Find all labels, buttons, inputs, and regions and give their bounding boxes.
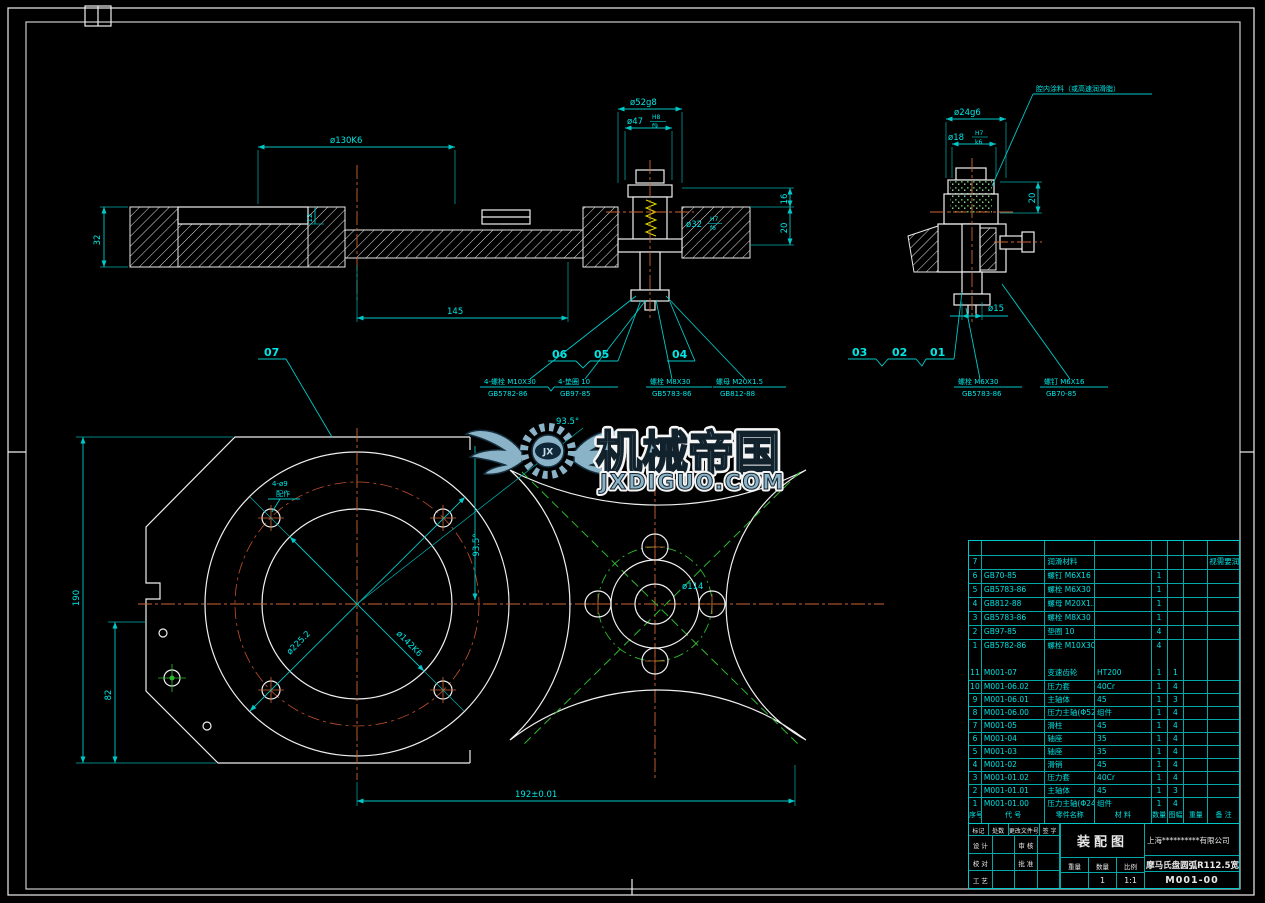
dim-24-label: ø24g6 xyxy=(954,108,981,118)
dim-32-label: 32 xyxy=(93,235,103,246)
label-audit: 审 核 xyxy=(1015,836,1039,853)
dim-47-label: ø47 xyxy=(627,117,643,127)
dim-4x9-note: 配作 xyxy=(276,489,290,498)
bom-cell-no: 7 xyxy=(969,556,982,569)
bom-cell-remark xyxy=(1208,681,1239,693)
weight-value xyxy=(1061,873,1089,888)
bom-cell-weight xyxy=(1184,746,1208,758)
dim-18-label: ø18 xyxy=(948,133,964,143)
bom-cell-material: 45 xyxy=(1095,720,1152,732)
dim-15-label: ø15 xyxy=(988,304,1004,314)
bom-table: 7 润滑材料 视需要润滑 6 GB70-85 螺钉 M6X16 1 5 GB57… xyxy=(968,540,1240,826)
title-block-center: 装配图 重量 数量 比例 1 1:1 xyxy=(1061,824,1145,888)
bom-row: 2 GB97-85 垫圈 10 4 xyxy=(969,625,1239,639)
balloon-03: 03 xyxy=(852,346,867,359)
bom-cell-no: 10 xyxy=(969,681,982,693)
bom-cell-code: M001-01.02 xyxy=(982,772,1046,784)
bom-cell-code: M001-02 xyxy=(982,759,1046,771)
bom-cell-qty: 1 xyxy=(1152,694,1168,706)
balloon-01: 01 xyxy=(930,346,945,359)
callout-screw-m6x16-std: GB70-85 xyxy=(1046,390,1077,398)
bom-cell-no: 4 xyxy=(969,598,982,611)
bom-cell-qty: 1 xyxy=(1152,667,1168,680)
balloon-07: 07 xyxy=(264,346,279,359)
bom-cell-code: GB70-85 xyxy=(982,570,1046,583)
plan-view-dimensions: ø225.2 ø142K6 93.5° 93.5° 4-ø9 配作 190 82… xyxy=(72,346,795,806)
bom-cell-qty: 1 xyxy=(1152,785,1168,797)
bom-cell-code: GB97-85 xyxy=(982,626,1046,639)
bom-cell-qty: 1 xyxy=(1152,681,1168,693)
label-qty: 数量 xyxy=(1089,858,1117,873)
dim-20-right-label: 20 xyxy=(1028,193,1038,204)
bom-cell-name: 润滑材料 xyxy=(1045,556,1095,569)
bom-cell-material xyxy=(1095,584,1152,597)
label-sign: 签 字 xyxy=(1040,824,1060,836)
bom-row: 4 GB812-88 螺母 M20X1.5 1 xyxy=(969,597,1239,611)
bom-cell-no xyxy=(969,541,982,555)
bom-cell-format xyxy=(1168,640,1185,653)
bom-cell-qty: 1 xyxy=(1152,570,1168,583)
bom-cell-weight xyxy=(1184,707,1208,719)
bom-cell-name: 螺栓 M10X30 xyxy=(1045,640,1095,653)
bom-cell-remark xyxy=(1208,640,1239,653)
label-approve: 批 准 xyxy=(1015,854,1039,871)
bom-cell-code: M001-01.00 xyxy=(982,798,1046,810)
bom-cell-remark xyxy=(1208,584,1239,597)
bom-cell-no: 6 xyxy=(969,570,982,583)
bom-cell-no: 5 xyxy=(969,584,982,597)
bom-cell-name: 螺钉 M6X16 xyxy=(1045,570,1095,583)
bom-cell-format: 1 xyxy=(1168,667,1185,680)
bom-cell-material: HT200 xyxy=(1095,667,1152,680)
bom-cell-no: 1 xyxy=(969,798,982,810)
balloon-06: 06 xyxy=(552,348,568,361)
dim-12-label: 12 xyxy=(306,214,314,223)
bom-cell-code: M001-06.01 xyxy=(982,694,1046,706)
bom-row: 11 M001-07 变速齿轮 HT200 1 1 xyxy=(969,667,1239,680)
bom-cell-remark xyxy=(1208,707,1239,719)
bom-row xyxy=(969,541,1239,555)
bom-cell-remark xyxy=(1208,667,1239,680)
bom-row: 10 M001-06.02 压力套 40Cr 1 4 xyxy=(969,680,1239,693)
bom-cell-weight xyxy=(1184,733,1208,745)
bom-cell-qty: 1 xyxy=(1152,733,1168,745)
bom-cell-weight xyxy=(1184,541,1208,555)
bom-row: 1 M001-01.00 压力主轴(Φ24) 组件 1 4 xyxy=(969,797,1239,810)
bom-cell-qty: 1 xyxy=(1152,759,1168,771)
bom-cell-weight xyxy=(1184,694,1208,706)
bom-cell-format xyxy=(1168,584,1185,597)
bom-cell-name: 变速齿轮 xyxy=(1045,667,1095,680)
bom-cell-remark xyxy=(1208,626,1239,639)
scale-value: 1:1 xyxy=(1117,873,1144,888)
bom-cell-no: 8 xyxy=(969,707,982,719)
bom-cell-qty: 1 xyxy=(1152,720,1168,732)
bom-cell-remark xyxy=(1208,798,1239,810)
plan-view-geneva-wheel: ø114 xyxy=(510,470,806,746)
bom-cell-remark xyxy=(1208,759,1239,771)
dim-47-fit-den: f9 xyxy=(652,123,658,130)
bom-cell-material: 40Cr xyxy=(1095,772,1152,784)
dim-18-fit-den: k6 xyxy=(975,139,982,146)
bom-cell-qty xyxy=(1152,556,1168,569)
bom-cell-weight xyxy=(1184,772,1208,784)
bom-cell-name: 压力套 xyxy=(1045,772,1095,784)
bom-cell-weight xyxy=(1184,720,1208,732)
bom-cell-no: 9 xyxy=(969,694,982,706)
bom-cell-format: 4 xyxy=(1168,733,1185,745)
logo-monogram: JX xyxy=(542,448,553,458)
product-title: 摩马氏盘圆弧R112.5宽 xyxy=(1145,856,1239,872)
label-count: 处数 xyxy=(989,824,1009,836)
dim-935-top-label: 93.5° xyxy=(556,417,579,427)
dim-130-label: ø130K6 xyxy=(330,136,362,146)
bom-cell-format: 4 xyxy=(1168,798,1185,810)
bom-row: 8 M001-06.00 压力主轴(Φ52) 组件 1 4 xyxy=(969,706,1239,719)
bom-row: 6 M001-04 轴座 35 1 4 xyxy=(969,732,1239,745)
bom-cell-code: M001-03 xyxy=(982,746,1046,758)
drawing-number: M001-00 xyxy=(1145,872,1239,888)
bom-cell-code: M001-01.01 xyxy=(982,785,1046,797)
bom-cell-format: 3 xyxy=(1168,694,1185,706)
bom-cell-remark xyxy=(1208,785,1239,797)
bom-cell-code: M001-07 xyxy=(982,667,1046,680)
bom-cell-format xyxy=(1168,598,1185,611)
bom-row: 7 M001-05 滑柱 45 1 4 xyxy=(969,719,1239,732)
bom-cell-qty xyxy=(1152,541,1168,555)
bom-cell-material xyxy=(1095,612,1152,625)
bom-cell-material xyxy=(1095,541,1152,555)
company-name: 上海**********有限公司 xyxy=(1145,824,1239,856)
dim-47-fit-num: H8 xyxy=(652,114,661,121)
bom-cell-name: 轴座 xyxy=(1045,746,1095,758)
label-change-doc: 更改文件号 xyxy=(1009,824,1041,836)
bom-cell-remark xyxy=(1208,541,1239,555)
qty-value: 1 xyxy=(1089,873,1117,888)
bom-cell-name xyxy=(1045,541,1095,555)
bom-cell-no: 3 xyxy=(969,772,982,784)
bom-row: 3 GB5783-86 螺栓 M8X30 1 xyxy=(969,611,1239,625)
bom-cell-qty: 1 xyxy=(1152,612,1168,625)
callout-nut-m20: 螺母 M20X1.5 xyxy=(716,377,763,386)
bom-row: 3 M001-01.02 压力套 40Cr 1 4 xyxy=(969,771,1239,784)
bom-cell-name: 压力套 xyxy=(1045,681,1095,693)
bom-cell-code xyxy=(982,556,1046,569)
bom-cell-format xyxy=(1168,612,1185,625)
dim-145-label: 145 xyxy=(447,307,463,317)
bom-cell-code xyxy=(982,541,1046,555)
callout-bolt-m6x30-std: GB5783-86 xyxy=(962,390,1002,398)
bom-cell-format xyxy=(1168,626,1185,639)
bom-cell-code: M001-05 xyxy=(982,720,1046,732)
bom-cell-remark xyxy=(1208,598,1239,611)
bom-row: 5 M001-03 轴座 35 1 4 xyxy=(969,745,1239,758)
note-lubricant: 腔内涂料（或高速润滑脂） xyxy=(1036,84,1120,93)
dim-20-label: 20 xyxy=(780,223,790,234)
label-mark: 标记 xyxy=(969,824,989,836)
bom-cell-remark xyxy=(1208,733,1239,745)
bom-cell-weight xyxy=(1184,570,1208,583)
doc-type: 装配图 xyxy=(1061,824,1144,858)
logo-site-text: JXDIGUO.COM xyxy=(598,470,785,494)
bom-cell-weight xyxy=(1184,681,1208,693)
bom-cell-weight xyxy=(1184,798,1208,810)
bom-cell-qty: 1 xyxy=(1152,598,1168,611)
bom-cell-format: 4 xyxy=(1168,759,1185,771)
bom-cell-name: 压力主轴(Φ24) xyxy=(1045,798,1095,810)
section-view-assembly-24 xyxy=(908,158,1042,322)
bom-cell-format: 4 xyxy=(1168,772,1185,784)
bom-cell-qty: 1 xyxy=(1152,584,1168,597)
bom-cell-weight xyxy=(1184,640,1208,653)
bom-cell-code: GB5783-86 xyxy=(982,584,1046,597)
dim-114-label: ø114 xyxy=(682,582,703,592)
assembly-52-balloons: 06 05 04 4-螺栓 M10X30 GB5782-86 4-垫圈 10 G… xyxy=(480,296,786,398)
bom-cell-qty: 4 xyxy=(1152,640,1168,653)
bom-cell-material xyxy=(1095,598,1152,611)
bom-cell-no: 2 xyxy=(969,785,982,797)
bom-cell-material: 45 xyxy=(1095,694,1152,706)
bom-row: 5 GB5783-86 螺栓 M6X30 1 xyxy=(969,583,1239,597)
bom-cell-format: 4 xyxy=(1168,720,1185,732)
bom-cell-weight xyxy=(1184,612,1208,625)
bom-cell-code: GB5783-86 xyxy=(982,612,1046,625)
callout-screw-m6x16: 螺钉 M6X16 xyxy=(1044,377,1085,386)
dim-52-label: ø52g8 xyxy=(630,98,657,108)
dim-32-bore-fit-den: f6 xyxy=(710,225,716,232)
bom-cell-format: 3 xyxy=(1168,785,1185,797)
dim-32-bore-label: ø32 xyxy=(686,220,702,230)
bom-cell-format: 4 xyxy=(1168,681,1185,693)
dim-18-fit-num: H7 xyxy=(975,130,984,137)
bom-cell-name: 滑柱 xyxy=(1045,720,1095,732)
bom-cell-material: 组件 xyxy=(1095,707,1152,719)
bom-cell-no: 3 xyxy=(969,612,982,625)
balloon-04: 04 xyxy=(672,348,688,361)
bom-cell-material xyxy=(1095,556,1152,569)
callout-bolt-m10x30: 4-螺栓 M10X30 xyxy=(484,377,536,386)
dim-190-label: 190 xyxy=(72,590,82,606)
bom-cell-no: 2 xyxy=(969,626,982,639)
bom-cell-format xyxy=(1168,541,1185,555)
bom-cell-material: 35 xyxy=(1095,746,1152,758)
bom-cell-no: 1 xyxy=(969,640,982,653)
bom-cell-format xyxy=(1168,570,1185,583)
bom-cell-remark xyxy=(1208,720,1239,732)
bom-cell-weight xyxy=(1184,759,1208,771)
bom-cell-code: M001-04 xyxy=(982,733,1046,745)
bom-cell-format: 4 xyxy=(1168,746,1185,758)
watermark-logo: JX 机械帝国 机械帝国 JXDIGUO.COM JXDIGUO.COM xyxy=(466,426,785,494)
bom-gap-row xyxy=(969,653,1239,667)
bom-cell-remark xyxy=(1208,746,1239,758)
section-view-assembly-52 xyxy=(606,160,694,318)
label-design: 设 计 xyxy=(969,836,993,853)
dim-192-label: 192±0.01 xyxy=(515,790,557,800)
bom-cell-code: GB812-88 xyxy=(982,598,1046,611)
bom-cell-weight xyxy=(1184,785,1208,797)
bom-cell-material: 40Cr xyxy=(1095,681,1152,693)
title-block-right: 上海**********有限公司 摩马氏盘圆弧R112.5宽 M001-00 xyxy=(1145,824,1239,888)
dim-32-bore-fit-num: H7 xyxy=(710,216,719,223)
bom-row: 4 M001-02 滑销 45 1 4 xyxy=(969,758,1239,771)
bom-cell-format xyxy=(1168,556,1185,569)
dim-142-label: ø142K6 xyxy=(394,629,424,659)
bom-cell-qty: 1 xyxy=(1152,746,1168,758)
title-block-revision-area: 标记 处数 更改文件号 签 字 设 计 审 核 校 对 批 准 xyxy=(969,824,1061,888)
bom-cell-qty: 4 xyxy=(1152,626,1168,639)
bom-cell-weight xyxy=(1184,667,1208,680)
balloon-02: 02 xyxy=(892,346,907,359)
label-proof: 校 对 xyxy=(969,854,993,871)
bom-cell-code: M001-06.00 xyxy=(982,707,1046,719)
callout-bolt-m6x30: 螺栓 M6X30 xyxy=(958,377,998,386)
bom-cell-material xyxy=(1095,640,1152,653)
bom-cell-no: 6 xyxy=(969,733,982,745)
dim-935-side-label: 93.5° xyxy=(472,533,482,556)
bom-row: 6 GB70-85 螺钉 M6X16 1 xyxy=(969,569,1239,583)
dim-4x9-label: 4-ø9 xyxy=(272,480,288,488)
bom-cell-no: 7 xyxy=(969,720,982,732)
bom-manufactured-parts: 11 M001-07 变速齿轮 HT200 1 1 10 M001-06.02 … xyxy=(969,667,1239,810)
bom-cell-material: 45 xyxy=(1095,785,1152,797)
bom-cell-no: 5 xyxy=(969,746,982,758)
dim-16-label: 16 xyxy=(780,194,790,205)
bom-cell-weight xyxy=(1184,556,1208,569)
callout-bolt-m10x30-std: GB5782-86 xyxy=(488,390,528,398)
bom-row: 9 M001-06.01 主轴体 45 1 3 xyxy=(969,693,1239,706)
title-block: 标记 处数 更改文件号 签 字 设 计 审 核 校 对 批 准 xyxy=(968,823,1240,889)
callout-nut-m20-std: GB812-88 xyxy=(720,390,755,398)
cad-drawing-screenshot: ø130K6 145 32 12 ø52g8 ø47 H8 f9 16 20 ø… xyxy=(0,0,1265,903)
label-weight: 重量 xyxy=(1061,858,1089,873)
bom-cell-name: 轴座 xyxy=(1045,733,1095,745)
bom-cell-weight xyxy=(1184,584,1208,597)
bom-cell-weight xyxy=(1184,626,1208,639)
bom-cell-name: 滑销 xyxy=(1045,759,1095,771)
bom-cell-qty: 1 xyxy=(1152,798,1168,810)
bom-cell-qty: 1 xyxy=(1152,707,1168,719)
bom-cell-remark xyxy=(1208,694,1239,706)
bom-row: 1 GB5782-86 螺栓 M10X30 4 xyxy=(969,639,1239,653)
bom-cell-material xyxy=(1095,570,1152,583)
bom-cell-qty: 1 xyxy=(1152,772,1168,784)
label-process: 工 艺 xyxy=(969,871,993,888)
callout-bolt-m8x30: 螺栓 M8X30 xyxy=(650,377,690,386)
callout-washer-10: 4-垫圈 10 xyxy=(558,377,590,386)
label-scale: 比例 xyxy=(1117,858,1144,873)
bom-cell-no: 11 xyxy=(969,667,982,680)
bom-cell-remark xyxy=(1208,570,1239,583)
bom-cell-remark: 视需要润滑 xyxy=(1208,556,1239,569)
bom-cell-material: 组件 xyxy=(1095,798,1152,810)
bom-standard-parts: 7 润滑材料 视需要润滑 6 GB70-85 螺钉 M6X16 1 5 GB57… xyxy=(969,541,1239,653)
bom-cell-remark xyxy=(1208,772,1239,784)
bom-cell-format: 4 xyxy=(1168,707,1185,719)
bom-row: 2 M001-01.01 主轴体 45 1 3 xyxy=(969,784,1239,797)
bom-cell-name: 螺栓 M6X30 xyxy=(1045,584,1095,597)
bom-cell-name: 主轴体 xyxy=(1045,694,1095,706)
bom-cell-name: 垫圈 10 xyxy=(1045,626,1095,639)
bom-row: 7 润滑材料 视需要润滑 xyxy=(969,555,1239,569)
bom-cell-no: 4 xyxy=(969,759,982,771)
bom-cell-material: 35 xyxy=(1095,733,1152,745)
callout-washer-10-std: GB97-85 xyxy=(560,390,591,398)
bom-cell-name: 压力主轴(Φ52) xyxy=(1045,707,1095,719)
bom-cell-name: 螺栓 M8X30 xyxy=(1045,612,1095,625)
dim-82-label: 82 xyxy=(104,690,114,701)
bom-cell-material xyxy=(1095,626,1152,639)
bom-cell-material: 45 xyxy=(1095,759,1152,771)
bom-cell-code: M001-06.02 xyxy=(982,681,1046,693)
bom-cell-name: 主轴体 xyxy=(1045,785,1095,797)
callout-bolt-m8x30-std: GB5783-86 xyxy=(652,390,692,398)
bom-cell-weight xyxy=(1184,598,1208,611)
bom-cell-name: 螺母 M20X1.5 xyxy=(1045,598,1095,611)
bom-cell-remark xyxy=(1208,612,1239,625)
bom-cell-code: GB5782-86 xyxy=(982,640,1046,653)
